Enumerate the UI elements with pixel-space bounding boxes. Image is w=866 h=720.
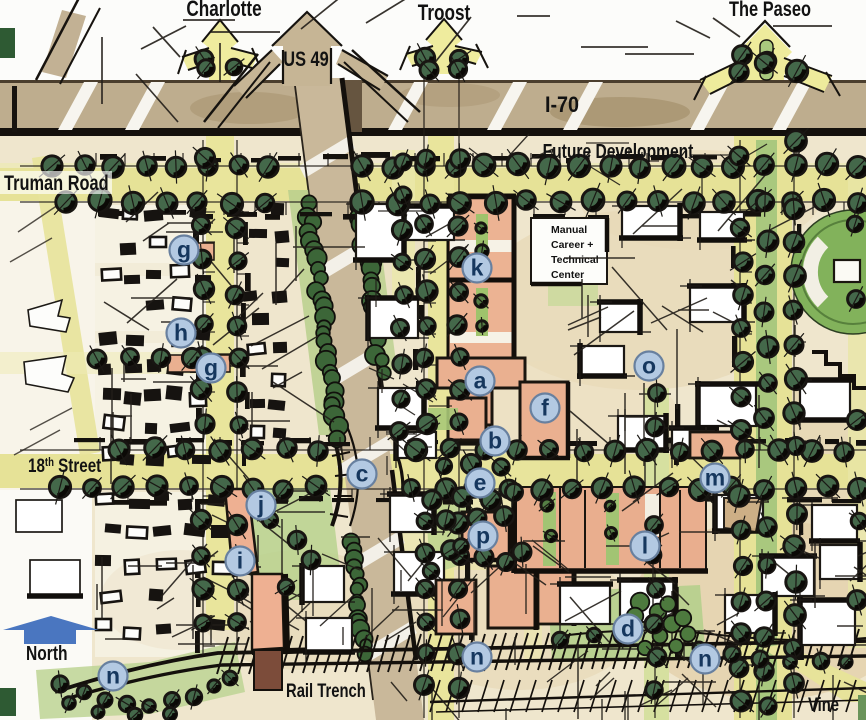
svg-text:North: North bbox=[26, 642, 68, 664]
svg-text:b: b bbox=[488, 428, 502, 454]
svg-text:n: n bbox=[106, 663, 120, 689]
svg-text:d: d bbox=[621, 616, 635, 642]
svg-text:Vine: Vine bbox=[808, 694, 839, 715]
svg-text:The Paseo: The Paseo bbox=[729, 0, 811, 20]
svg-text:g: g bbox=[204, 355, 218, 381]
svg-text:Rail Trench: Rail Trench bbox=[286, 680, 366, 701]
svg-text:Charlotte: Charlotte bbox=[186, 0, 261, 22]
svg-text:n: n bbox=[698, 646, 712, 672]
svg-text:a: a bbox=[474, 368, 487, 394]
svg-text:p: p bbox=[476, 523, 490, 549]
svg-text:o: o bbox=[642, 353, 656, 379]
svg-text:Truman Road: Truman Road bbox=[4, 171, 109, 194]
svg-text:j: j bbox=[257, 492, 264, 518]
svg-text:g: g bbox=[177, 237, 191, 263]
svg-text:Future Development: Future Development bbox=[543, 140, 694, 162]
svg-text:m: m bbox=[705, 465, 725, 491]
svg-text:h: h bbox=[174, 320, 188, 346]
svg-text:18th Street: 18th Street bbox=[28, 454, 101, 476]
svg-text:US 49: US 49 bbox=[283, 47, 329, 70]
svg-text:n: n bbox=[470, 644, 484, 670]
svg-text:k: k bbox=[471, 255, 484, 281]
svg-text:I-70: I-70 bbox=[545, 93, 579, 117]
svg-text:e: e bbox=[474, 470, 487, 496]
svg-text:f: f bbox=[541, 395, 549, 421]
svg-text:Troost: Troost bbox=[418, 1, 471, 26]
svg-text:c: c bbox=[356, 461, 369, 487]
svg-text:i: i bbox=[237, 548, 243, 574]
svg-text:l: l bbox=[642, 533, 648, 559]
